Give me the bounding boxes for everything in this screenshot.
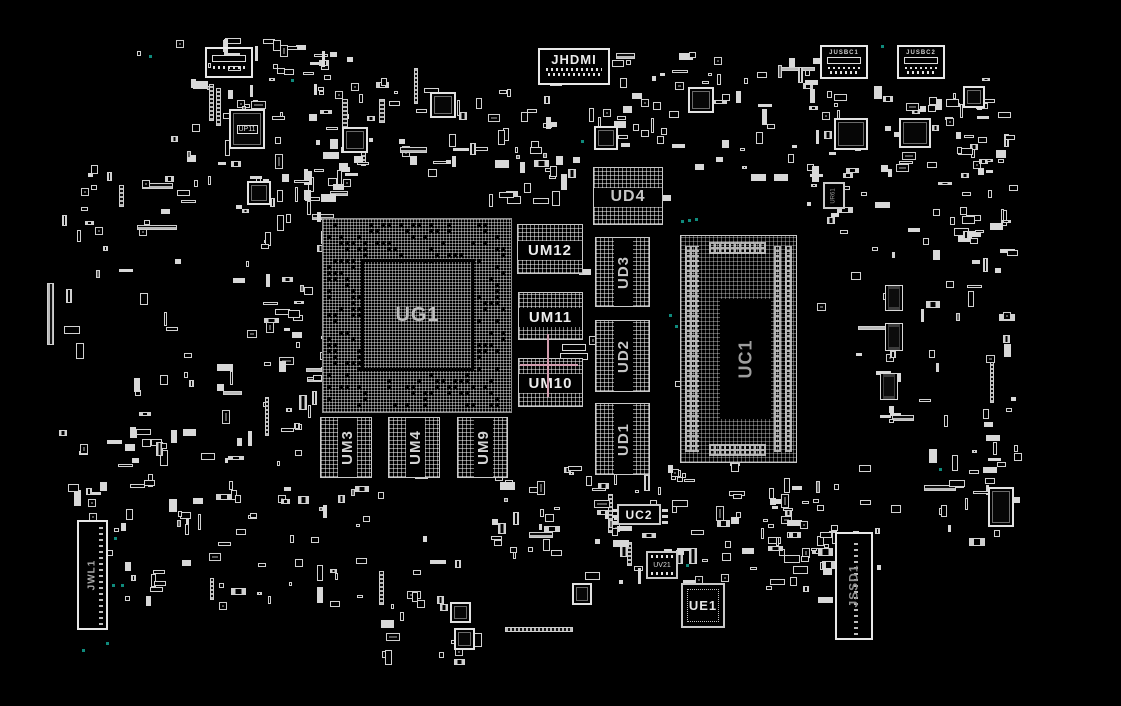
missing-pad — [333, 277, 337, 281]
pad-row — [546, 68, 602, 71]
missing-pad — [333, 271, 337, 275]
ic-chip — [454, 628, 475, 650]
via-marker — [82, 649, 85, 652]
missing-pad — [489, 391, 493, 395]
missing-pad — [417, 379, 421, 383]
missing-pad — [345, 361, 349, 365]
pin — [662, 509, 668, 512]
component-UE1[interactable]: UE1 — [681, 583, 725, 628]
missing-pad — [495, 319, 499, 323]
missing-pad — [459, 253, 463, 257]
missing-pad — [495, 397, 499, 401]
missing-pad — [489, 277, 493, 281]
missing-pad — [477, 319, 481, 323]
missing-pad — [363, 391, 367, 395]
ic-chip — [342, 127, 368, 153]
missing-pad — [423, 397, 427, 401]
component-UG1[interactable]: UG1 — [322, 218, 512, 413]
pin-header — [47, 283, 54, 345]
missing-pad — [357, 247, 361, 251]
missing-pad — [327, 235, 331, 239]
missing-pad — [339, 307, 343, 311]
missing-pad — [381, 223, 385, 227]
label-band: UM10 — [519, 374, 582, 393]
missing-pad — [495, 283, 499, 287]
missing-pad — [483, 385, 487, 389]
component-label: UM12 — [528, 243, 572, 258]
missing-pad — [411, 391, 415, 395]
missing-pad — [369, 229, 373, 233]
missing-pad — [339, 385, 343, 389]
missing-pad — [429, 373, 433, 377]
missing-pad — [489, 403, 493, 407]
missing-pad — [333, 349, 337, 353]
missing-pad — [483, 349, 487, 353]
fixtures-layer — [0, 0, 1121, 706]
label-band: UM11 — [519, 308, 582, 327]
missing-pad — [495, 367, 499, 371]
component-UM11[interactable]: UM11 — [518, 292, 583, 340]
component-label: JSSD1 — [848, 564, 860, 607]
missing-pad — [333, 313, 337, 317]
missing-pad — [345, 373, 349, 377]
ic-chip — [899, 118, 931, 148]
missing-pad — [375, 229, 379, 233]
missing-pad — [441, 379, 445, 383]
missing-pad — [351, 295, 355, 299]
missing-pad — [423, 403, 427, 407]
ic-chip — [885, 323, 903, 351]
pad-row — [651, 572, 673, 575]
missing-pad — [363, 241, 367, 245]
label-band: UM4 — [406, 418, 425, 477]
missing-pad — [369, 223, 373, 227]
via-marker — [881, 45, 884, 48]
label-wrap: JSSD1 — [837, 534, 871, 638]
die-outline: UG1 — [361, 259, 474, 371]
missing-pad — [387, 241, 391, 245]
missing-pad — [483, 229, 487, 233]
missing-pad — [447, 253, 451, 257]
missing-pad — [489, 331, 493, 335]
pad-array — [785, 246, 792, 452]
missing-pad — [357, 235, 361, 239]
component-UD4[interactable]: UD4 — [593, 167, 663, 225]
missing-pad — [345, 331, 349, 335]
pin-header — [505, 627, 573, 632]
missing-pad — [339, 241, 343, 245]
missing-pad — [471, 403, 475, 407]
missing-pad — [363, 397, 367, 401]
component-UC1[interactable]: UC1 — [680, 235, 797, 463]
missing-pad — [387, 223, 391, 227]
missing-pad — [423, 235, 427, 239]
missing-pad — [465, 391, 469, 395]
label-band: UM9 — [474, 418, 493, 477]
missing-pad — [495, 265, 499, 269]
missing-pad — [447, 223, 451, 227]
ic-chip — [880, 373, 898, 400]
missing-pad — [351, 361, 355, 365]
missing-pad — [327, 349, 331, 353]
missing-pad — [471, 385, 475, 389]
missing-pad — [477, 367, 481, 371]
missing-pad — [471, 241, 475, 245]
pad-row — [907, 71, 935, 74]
component-UV21[interactable]: UV21 — [646, 551, 678, 579]
missing-pad — [465, 379, 469, 383]
missing-pad — [375, 241, 379, 245]
missing-pad — [357, 403, 361, 407]
connector-slot — [212, 55, 246, 62]
missing-pad — [429, 223, 433, 227]
ic-chip — [963, 86, 985, 108]
label-band: UM3 — [338, 418, 357, 477]
component-JUSBC2[interactable]: JUSBC2 — [897, 45, 945, 79]
pin — [612, 515, 618, 518]
missing-pad — [435, 253, 439, 257]
missing-pad — [495, 301, 499, 305]
connector-slot — [827, 57, 861, 64]
missing-pad — [345, 247, 349, 251]
label-wrap: JWL1 — [79, 522, 106, 628]
ic-chip — [885, 285, 903, 311]
component-label: UE1 — [689, 599, 717, 612]
missing-pad — [363, 253, 367, 257]
missing-pad — [495, 349, 499, 353]
missing-pad — [387, 385, 391, 389]
component-label: UM10 — [528, 376, 572, 391]
missing-pad — [501, 307, 505, 311]
missing-pad — [483, 307, 487, 311]
component-UD3[interactable]: UD3 — [595, 237, 650, 307]
missing-pad — [345, 259, 349, 263]
label-band: UM12 — [518, 241, 582, 260]
pad-row — [651, 555, 673, 558]
missing-pad — [339, 331, 343, 335]
missing-pad — [327, 343, 331, 347]
component-label: UP11 — [237, 125, 258, 134]
missing-pad — [333, 361, 337, 365]
missing-pad — [351, 265, 355, 269]
component-label: UM3 — [340, 430, 355, 465]
missing-pad — [495, 247, 499, 251]
component-JWL1[interactable]: JWL1 — [77, 520, 108, 630]
missing-pad — [327, 265, 331, 269]
pin — [612, 509, 618, 512]
pad-row — [213, 66, 245, 69]
missing-pad — [429, 391, 433, 395]
ic-chip — [688, 87, 714, 113]
pin — [662, 515, 668, 518]
missing-pad — [333, 259, 337, 263]
missing-pad — [495, 295, 499, 299]
via-marker — [112, 584, 115, 587]
missing-pad — [483, 301, 487, 305]
missing-pad — [327, 277, 331, 281]
via-marker — [581, 140, 584, 143]
missing-pad — [399, 253, 403, 257]
via-marker — [106, 642, 109, 645]
via-marker — [675, 325, 678, 328]
component-label: JWL1 — [88, 560, 98, 591]
pin — [662, 521, 668, 524]
missing-pad — [447, 229, 451, 233]
missing-pad — [495, 235, 499, 239]
missing-pad — [351, 301, 355, 305]
missing-pad — [477, 343, 481, 347]
missing-pad — [465, 373, 469, 377]
missing-pad — [387, 379, 391, 383]
component-UM4[interactable]: UM4 — [388, 417, 440, 478]
missing-pad — [441, 241, 445, 245]
missing-pad — [333, 355, 337, 359]
missing-pad — [411, 385, 415, 389]
missing-pad — [351, 289, 355, 293]
component-UP11[interactable]: UP11 — [229, 109, 265, 149]
component-label: UD4 — [610, 189, 645, 205]
component-JSSD1[interactable]: JSSD1 — [835, 532, 873, 640]
missing-pad — [417, 223, 421, 227]
component-UD1[interactable]: UD1 — [595, 403, 650, 475]
missing-pad — [477, 349, 481, 353]
missing-pad — [333, 319, 337, 323]
missing-pad — [459, 391, 463, 395]
component-label: JUSBC2 — [906, 50, 936, 56]
via-marker — [939, 468, 942, 471]
component-label: UD3 — [616, 255, 631, 288]
pad-row — [548, 73, 600, 76]
missing-pad — [339, 271, 343, 275]
via-marker — [121, 584, 124, 587]
missing-pad — [351, 307, 355, 311]
missing-pad — [339, 235, 343, 239]
ic-chip — [594, 126, 618, 150]
missing-pad — [351, 313, 355, 317]
missing-pad — [333, 343, 337, 347]
component-label: UR61 — [831, 188, 837, 203]
missing-pad — [501, 337, 505, 341]
missing-pad — [495, 289, 499, 293]
via-marker — [686, 564, 689, 567]
missing-pad — [453, 385, 457, 389]
missing-pad — [411, 235, 415, 239]
missing-pad — [405, 403, 409, 407]
missing-pad — [405, 385, 409, 389]
component-UR61[interactable]: UR61 — [823, 182, 845, 209]
component-label: UM11 — [529, 310, 572, 325]
missing-pad — [477, 259, 481, 263]
pad-row — [830, 71, 858, 74]
ic-chip — [572, 583, 592, 605]
missing-pad — [351, 337, 355, 341]
ic-chip — [247, 181, 271, 205]
component-UM9[interactable]: UM9 — [457, 417, 508, 478]
missing-pad — [483, 241, 487, 245]
missing-pad — [495, 403, 499, 407]
missing-pad — [447, 385, 451, 389]
connector-slot — [904, 57, 938, 64]
pad-array — [709, 444, 766, 456]
missing-pad — [393, 403, 397, 407]
missing-pad — [393, 247, 397, 251]
via-marker — [669, 314, 672, 317]
missing-pad — [447, 391, 451, 395]
missing-pad — [327, 373, 331, 377]
missing-pad — [327, 295, 331, 299]
component-label: UV21 — [653, 562, 671, 569]
component-UM3[interactable]: UM3 — [320, 417, 372, 478]
component-JHDMI[interactable]: JHDMI — [538, 48, 610, 85]
missing-pad — [465, 403, 469, 407]
missing-pad — [351, 241, 355, 245]
ic-chip — [834, 118, 868, 150]
missing-pad — [387, 247, 391, 251]
missing-pad — [327, 271, 331, 275]
missing-pad — [381, 241, 385, 245]
component-label: UM9 — [476, 430, 491, 465]
via-marker — [688, 219, 691, 222]
missing-pad — [435, 229, 439, 233]
missing-pad — [435, 379, 439, 383]
label-band: UD4 — [594, 188, 662, 207]
missing-pad — [363, 247, 367, 251]
missing-pad — [423, 391, 427, 395]
ic-chip — [430, 92, 456, 118]
label-band: UD2 — [614, 321, 633, 391]
component-UD2[interactable]: UD2 — [595, 320, 650, 392]
component-label: JUSBC1 — [829, 50, 859, 56]
missing-pad — [345, 241, 349, 245]
missing-pad — [345, 283, 349, 287]
missing-pad — [501, 271, 505, 275]
net-label-tag — [562, 344, 586, 351]
component-label: UG1 — [395, 305, 439, 325]
missing-pad — [327, 385, 331, 389]
missing-pad — [333, 223, 337, 227]
missing-pad — [327, 337, 331, 341]
missing-pad — [345, 277, 349, 281]
ic-chip — [988, 487, 1014, 527]
missing-pad — [345, 385, 349, 389]
missing-pad — [351, 259, 355, 263]
missing-pad — [501, 247, 505, 251]
pad-array — [709, 242, 766, 254]
component-label: UM4 — [408, 430, 423, 465]
pcb-boardview-canvas[interactable]: JHDMIUD4UM12UD3UM11UD2UM10UD1UG1UC1UM3UM… — [0, 0, 1121, 706]
missing-pad — [327, 313, 331, 317]
via-marker — [681, 220, 684, 223]
missing-pad — [477, 223, 481, 227]
component-label: UC2 — [625, 509, 652, 521]
via-marker — [149, 55, 152, 58]
via-marker — [114, 537, 117, 540]
component-UC2[interactable]: UC2 — [617, 504, 661, 525]
die-area: UC1 — [720, 299, 771, 419]
missing-pad — [489, 343, 493, 347]
missing-pad — [483, 223, 487, 227]
missing-pad — [489, 379, 493, 383]
component-label: UC1 — [736, 339, 754, 378]
pad-array — [774, 246, 781, 452]
missing-pad — [339, 259, 343, 263]
component-label: UD1 — [616, 422, 631, 455]
label-band: UD3 — [614, 238, 633, 306]
component-UM12[interactable]: UM12 — [517, 224, 583, 274]
missing-pad — [435, 385, 439, 389]
missing-pad — [357, 385, 361, 389]
missing-pad — [453, 379, 457, 383]
connector-unlabeled[interactable] — [205, 47, 253, 78]
component-JUSBC1[interactable]: JUSBC1 — [820, 45, 868, 79]
component-label: UD2 — [616, 339, 631, 372]
missing-pad — [453, 253, 457, 257]
component-label: JHDMI — [551, 53, 596, 66]
missing-pad — [477, 295, 481, 299]
pad-array — [685, 246, 699, 452]
missing-pad — [405, 229, 409, 233]
missing-pad — [483, 343, 487, 347]
missing-pad — [399, 223, 403, 227]
missing-pad — [477, 355, 481, 359]
missing-pad — [501, 253, 505, 257]
missing-pad — [429, 229, 433, 233]
pin — [612, 521, 618, 524]
missing-pad — [411, 223, 415, 227]
missing-pad — [327, 289, 331, 293]
pad-row — [905, 67, 937, 70]
missing-pad — [327, 397, 331, 401]
ic-chip — [450, 602, 471, 623]
probe-crosshair-h — [520, 364, 578, 366]
via-marker — [291, 79, 294, 82]
pad-row — [828, 67, 860, 70]
via-marker — [695, 218, 698, 221]
label-band: UD1 — [614, 404, 633, 474]
missing-pad — [459, 379, 463, 383]
missing-pad — [501, 331, 505, 335]
missing-pad — [489, 301, 493, 305]
missing-pad — [429, 247, 433, 251]
